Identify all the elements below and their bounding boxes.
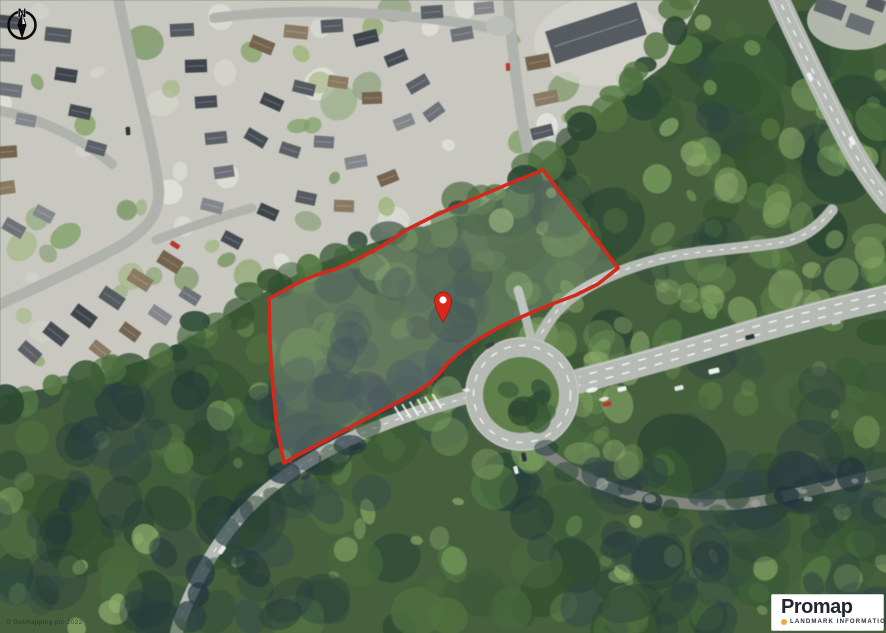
imagery-attribution: © Getmapping plc 2022	[6, 619, 83, 626]
pin-hole	[439, 296, 446, 303]
promap-wordmark: Promap	[781, 597, 883, 617]
compass-north-label: N	[18, 6, 27, 20]
map-viewport[interactable]: N © Getmapping plc 2022 Promap LANDMARK …	[0, 0, 886, 633]
landmark-dot-icon	[781, 619, 787, 625]
aerial-map-canvas[interactable]: N	[0, 0, 886, 633]
landmark-tagline: LANDMARK INFORMATION	[790, 618, 886, 625]
promap-logo: Promap LANDMARK INFORMATION	[771, 594, 884, 631]
roundabout	[465, 337, 579, 451]
